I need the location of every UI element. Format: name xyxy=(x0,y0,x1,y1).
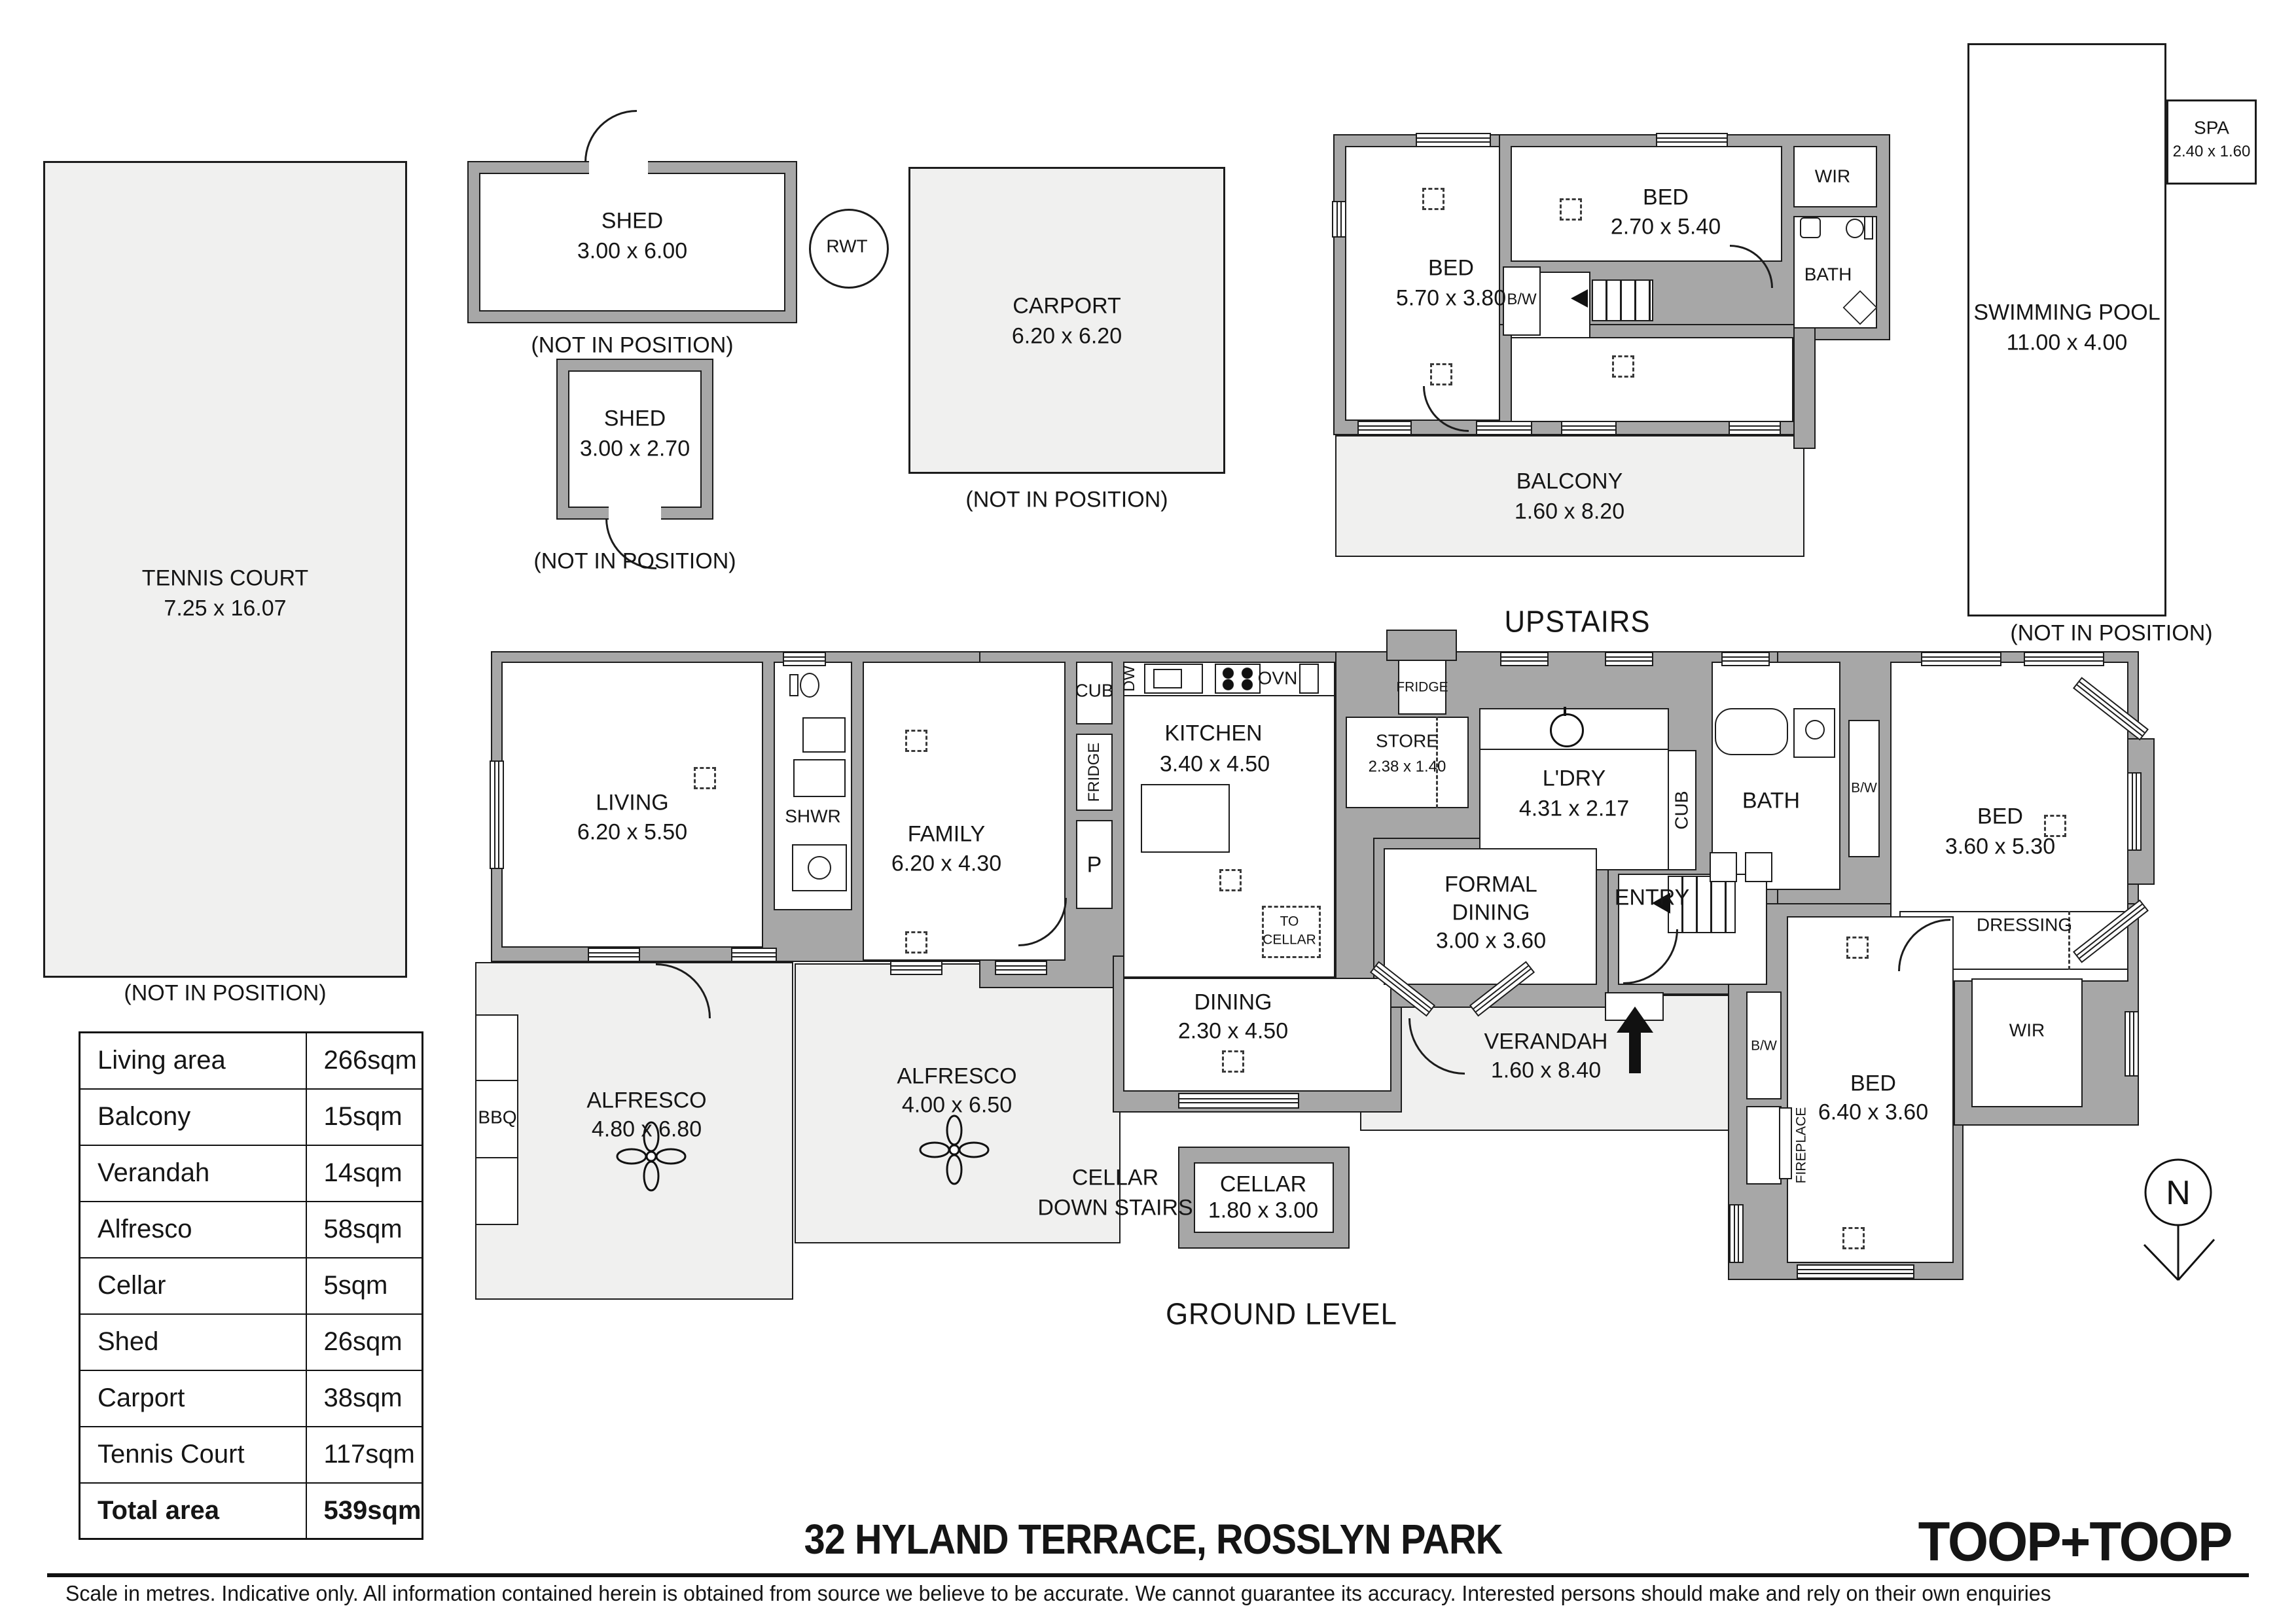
ceiling-symbol xyxy=(1560,198,1582,221)
ground-title: GROUND LEVEL xyxy=(1166,1298,1397,1331)
table-row: Balcony15sqm xyxy=(80,1089,423,1145)
area-value: 5sqm xyxy=(306,1258,423,1314)
window xyxy=(2127,772,2142,851)
laundry-dims: 4.31 x 2.17 xyxy=(1519,796,1629,821)
window xyxy=(588,948,640,962)
page-title: 32 HYLAND TERRACE, ROSSLYN PARK xyxy=(804,1515,1503,1563)
area-value: 266sqm xyxy=(306,1033,423,1089)
washer-icon-stem xyxy=(1564,707,1566,716)
alfresco-large-dims: 4.80 x 6.80 xyxy=(592,1117,702,1141)
dw-label: DW xyxy=(1121,666,1138,692)
pool-dims: 11.00 x 4.00 xyxy=(2007,330,2128,355)
sink-icon xyxy=(802,717,846,753)
area-table: Living area266sqm Balcony15sqm Verandah1… xyxy=(79,1031,423,1540)
table-row: Shed26sqm xyxy=(80,1314,423,1370)
formal-dining-dims: 3.00 x 3.60 xyxy=(1436,929,1546,953)
family-dims: 6.20 x 4.30 xyxy=(891,851,1001,876)
area-value: 15sqm xyxy=(306,1089,423,1145)
laundry-counter-line xyxy=(1479,749,1669,750)
ceiling-symbol xyxy=(905,931,927,954)
vanity-icon xyxy=(793,759,846,797)
area-label: Tennis Court xyxy=(80,1427,306,1483)
dining-dims: 2.30 x 4.50 xyxy=(1178,1019,1288,1043)
upstairs-window xyxy=(1729,421,1781,435)
tennis-court-dims: 7.25 x 16.07 xyxy=(164,596,286,620)
pantry-label: P xyxy=(1087,853,1102,877)
upstairs-wall-stub xyxy=(1793,327,1816,449)
fridge-kitchen-label: FRIDGE xyxy=(1086,743,1103,802)
kitchen-label: KITCHEN xyxy=(1164,721,1262,745)
shed-large-dims: 3.00 x 6.00 xyxy=(577,239,687,263)
ceiling-symbol xyxy=(1612,355,1634,378)
entry-label: ENTRY xyxy=(1615,885,1690,910)
upstairs-title: UPSTAIRS xyxy=(1505,605,1651,639)
shed-large-label: SHED xyxy=(601,209,663,233)
disclaimer-text: Scale in metres. Indicative only. All in… xyxy=(65,1581,2051,1606)
window xyxy=(890,961,942,975)
alfresco-small-dims: 4.00 x 6.50 xyxy=(902,1093,1012,1117)
ceiling-symbol xyxy=(1422,188,1444,210)
sink-icon xyxy=(1710,852,1737,882)
window xyxy=(995,961,1047,975)
upstairs-window xyxy=(1656,133,1728,147)
bath-label: BATH xyxy=(1742,789,1800,813)
bw-bed-label: B/W xyxy=(1751,1038,1777,1053)
cub-kitchen-label: CUB xyxy=(1075,681,1113,702)
table-row: Verandah14sqm xyxy=(80,1145,423,1202)
fridge-store-label: FRIDGE xyxy=(1396,679,1448,694)
sink-icon xyxy=(1745,852,1772,882)
tennis-court-label: TENNIS COURT xyxy=(142,566,308,590)
upstairs-bed-left-label: BED xyxy=(1428,256,1474,280)
living-label: LIVING xyxy=(596,791,668,815)
carport-label: CARPORT xyxy=(1013,294,1121,318)
laundry-label: L'DRY xyxy=(1543,766,1606,791)
upstairs-stairs-arrow xyxy=(1571,289,1588,308)
upstairs-bath-label: BATH xyxy=(1804,265,1852,285)
balcony-area xyxy=(1335,435,1804,557)
toilet-icon xyxy=(1846,219,1864,238)
verandah-dims: 1.60 x 8.40 xyxy=(1491,1058,1601,1082)
table-row: Carport38sqm xyxy=(80,1370,423,1427)
tennis-not-in-position: (NOT IN POSITION) xyxy=(124,981,326,1005)
area-label: Cellar xyxy=(80,1258,306,1314)
north-arrow-icon: N xyxy=(2119,1152,2240,1289)
window xyxy=(2024,652,2104,666)
to-cellar-line1: TO xyxy=(1280,914,1299,929)
shed-small-door-gap xyxy=(609,503,661,520)
shed-large-not-in-position: (NOT IN POSITION) xyxy=(531,333,733,357)
bbq-divider xyxy=(475,1080,518,1081)
formal-dining-line1: FORMAL xyxy=(1444,872,1537,897)
upstairs-bed-right-label: BED xyxy=(1643,185,1689,209)
ceiling-symbol xyxy=(1846,936,1869,959)
window xyxy=(1721,652,1770,666)
toilet-icon xyxy=(1864,216,1873,240)
upstairs-window xyxy=(1416,133,1491,147)
carport-dims: 6.20 x 6.20 xyxy=(1012,324,1122,348)
window xyxy=(1500,652,1549,666)
toilet-icon xyxy=(800,673,819,698)
pool-label: SWIMMING POOL xyxy=(1973,300,2160,325)
toilet-icon xyxy=(789,674,798,696)
upstairs-bed-left-room xyxy=(1345,146,1500,421)
table-row: Cellar5sqm xyxy=(80,1258,423,1314)
entry-arrow-stem xyxy=(1629,1029,1641,1073)
fireplace-box xyxy=(1779,1107,1792,1179)
ceiling-symbol xyxy=(1219,869,1242,891)
north-label: N xyxy=(2166,1174,2191,1212)
ground-wall-fridge-bump xyxy=(1386,630,1457,661)
rwt-label: RWT xyxy=(826,237,867,257)
kitchen-counter-line xyxy=(1123,695,1335,696)
pool-not-in-position: (NOT IN POSITION) xyxy=(2010,621,2212,645)
table-row-total: Total area539sqm xyxy=(80,1483,423,1539)
table-row: Alfresco58sqm xyxy=(80,1202,423,1258)
shed-small-dims: 3.00 x 2.70 xyxy=(580,437,690,461)
window xyxy=(1729,1204,1744,1263)
kitchen-sink-bowl xyxy=(1153,669,1182,688)
balcony-label: BALCONY xyxy=(1516,469,1623,493)
kitchen-dims: 3.40 x 4.50 xyxy=(1160,752,1270,776)
bw-bath-label: B/W xyxy=(1851,780,1877,795)
window xyxy=(2125,1011,2139,1077)
shower-drain-icon xyxy=(1805,720,1825,740)
table-row: Living area266sqm xyxy=(80,1033,423,1089)
window xyxy=(1921,652,2001,666)
carport-not-in-position: (NOT IN POSITION) xyxy=(965,488,1168,512)
shed-small-not-in-position: (NOT IN POSITION) xyxy=(533,549,736,573)
cooktop-icon xyxy=(1215,664,1261,694)
bathtub-icon xyxy=(1715,708,1788,755)
ceiling-symbol xyxy=(1842,1227,1865,1249)
cellar-dims: 1.80 x 3.00 xyxy=(1208,1198,1318,1222)
bed-rear-label: BED xyxy=(1850,1071,1896,1096)
table-row: Tennis Court117sqm xyxy=(80,1427,423,1483)
ceiling-symbol xyxy=(694,767,716,789)
area-label: Alfresco xyxy=(80,1202,306,1258)
window xyxy=(490,760,504,869)
shed-small-label: SHED xyxy=(604,406,666,431)
brand-logo: TOOP+TOOP xyxy=(1918,1510,2232,1574)
ceiling-symbol xyxy=(905,730,927,752)
entry-arrow-head xyxy=(1617,1007,1653,1033)
area-value: 58sqm xyxy=(306,1202,423,1258)
cellar-access-line2: DOWN STAIRS xyxy=(1037,1196,1193,1220)
upstairs-window xyxy=(1332,201,1346,238)
area-label: Balcony xyxy=(80,1089,306,1145)
fireplace-nook xyxy=(1746,1106,1782,1185)
wir-room xyxy=(1971,978,2083,1107)
to-cellar-line2: CELLAR xyxy=(1263,932,1316,947)
window xyxy=(1605,652,1653,666)
shed-large-door-arc xyxy=(584,110,637,162)
upstairs-window xyxy=(1561,421,1617,435)
window xyxy=(1797,1264,1914,1279)
store-label: STORE xyxy=(1376,732,1439,752)
area-value: 539sqm xyxy=(306,1483,423,1539)
bed-front-label: BED xyxy=(1977,804,2023,829)
verandah-label: VERANDAH xyxy=(1484,1029,1608,1054)
alfresco-large-label: ALFRESCO xyxy=(586,1088,706,1113)
area-value: 38sqm xyxy=(306,1370,423,1427)
spa-dims: 2.40 x 1.60 xyxy=(2173,143,2251,160)
window xyxy=(783,652,826,666)
bed-front-dims: 3.60 x 5.30 xyxy=(1945,834,2055,859)
dressing-label: DRESSING xyxy=(1977,916,2072,936)
fireplace-label: FIREPLACE xyxy=(1793,1107,1808,1184)
floorplan-page: TENNIS COURT 7.25 x 16.07 (NOT IN POSITI… xyxy=(0,0,2296,1623)
upstairs-bed-left-dims: 5.70 x 3.80 xyxy=(1396,286,1506,310)
alfresco-small-label: ALFRESCO xyxy=(897,1064,1016,1088)
area-value: 14sqm xyxy=(306,1145,423,1202)
bbq-divider xyxy=(475,1157,518,1158)
window xyxy=(1178,1093,1299,1109)
balcony-dims: 1.60 x 8.20 xyxy=(1515,499,1624,524)
upstairs-wir-label: WIR xyxy=(1815,167,1850,187)
cellar-access-line1: CELLAR xyxy=(1072,1166,1158,1190)
family-label: FAMILY xyxy=(908,822,985,846)
shwr-label: SHWR xyxy=(785,807,841,827)
footer-rule xyxy=(47,1573,2249,1577)
ceiling-symbol xyxy=(1222,1050,1244,1073)
upstairs-window xyxy=(1357,421,1412,435)
formal-dining-line2: DINING xyxy=(1452,901,1530,925)
window xyxy=(731,948,777,962)
ceiling-fan-icon xyxy=(918,1114,990,1186)
dining-label: DINING xyxy=(1194,990,1272,1014)
area-label: Shed xyxy=(80,1314,306,1370)
cellar-label: CELLAR xyxy=(1220,1172,1306,1196)
upstairs-window xyxy=(1476,421,1532,435)
area-label: Living area xyxy=(80,1033,306,1089)
upstairs-stairs xyxy=(1592,279,1653,321)
area-label: Verandah xyxy=(80,1145,306,1202)
cub-hall-label: CUB xyxy=(1672,791,1693,829)
oven-icon xyxy=(1299,664,1319,694)
washer-icon xyxy=(1550,713,1584,747)
bbq-label: BBQ xyxy=(478,1108,516,1128)
area-value: 117sqm xyxy=(306,1427,423,1483)
area-label: Carport xyxy=(80,1370,306,1427)
bed-rear-dims: 6.40 x 3.60 xyxy=(1818,1100,1928,1124)
ceiling-symbol xyxy=(1430,363,1452,385)
living-dims: 6.20 x 5.50 xyxy=(577,820,687,844)
kitchen-island xyxy=(1141,784,1230,853)
upstairs-landing xyxy=(1511,337,1793,422)
spa-label: SPA xyxy=(2194,118,2229,139)
store-dims: 2.38 x 1.40 xyxy=(1369,758,1446,776)
upstairs-bw-label: B/W xyxy=(1507,291,1536,308)
upstairs-bed-right-dims: 2.70 x 5.40 xyxy=(1611,215,1721,239)
area-label: Total area xyxy=(80,1483,306,1539)
wir-label: WIR xyxy=(2009,1021,2045,1041)
shower-drain-icon xyxy=(808,856,831,880)
ovn-label: OVN xyxy=(1258,669,1298,689)
area-value: 26sqm xyxy=(306,1314,423,1370)
carport-area xyxy=(908,167,1225,474)
sink-icon xyxy=(1800,217,1821,238)
